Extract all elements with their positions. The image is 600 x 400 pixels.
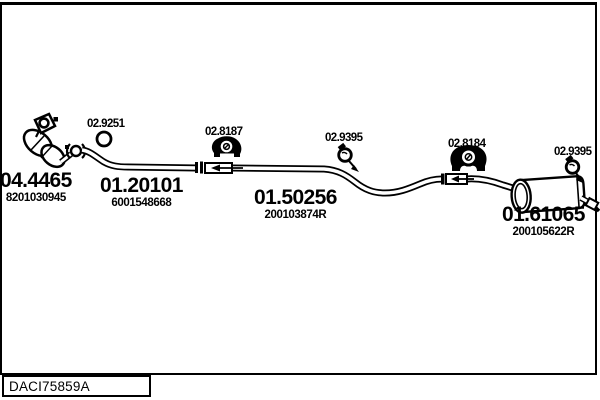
part-oem-ref: 6001548668 [111,197,171,209]
part-number: 04.4465 [0,171,72,190]
fitting-label-hanger-front: 02.8187 [205,127,242,138]
fitting-label-clamp-middle: 02.9395 [325,133,362,144]
part-label-front-pipe: 01.20101 6001548668 [100,176,183,209]
part-oem-ref: 200105622R [512,226,574,238]
fitting-label-clamp-rear: 02.9395 [554,147,591,158]
drawing-code: DACI75859A [9,379,90,394]
front-pipe-drawing [82,150,197,168]
fitting-label-gasket-ring: 02.9251 [87,119,124,130]
rear-pipe-drawing [466,179,516,189]
pipe-sleeve-joint [441,174,474,185]
fitting-label-hanger-rear: 02.8184 [448,139,485,150]
part-label-rear-silencer: 01.61065 200105622R [502,205,585,238]
bolt-square-icon [54,117,59,122]
cat-flange-bolt-hole-icon [40,119,49,128]
gasket-ring-icon [97,132,111,146]
part-label-catalytic-converter: 04.4465 8201030945 [0,171,72,204]
exhaust-parts-diagram-page: 02.9251 02.8187 02.9395 02.8184 02.9395 … [0,0,600,400]
part-number: 01.20101 [100,176,183,195]
part-oem-ref: 8201030945 [6,192,66,204]
part-oem-ref: 200103874R [264,209,326,221]
pipe-sleeve-joint [195,162,243,174]
clamp-icon [338,143,359,172]
part-number: 01.61065 [502,205,585,224]
drawing-code-box: DACI75859A [2,375,151,397]
catalytic-converter-drawing [19,114,85,171]
rubber-hanger-icon [212,136,241,157]
part-label-centre-pipe: 01.50256 200103874R [254,188,337,221]
part-number: 01.50256 [254,188,337,207]
